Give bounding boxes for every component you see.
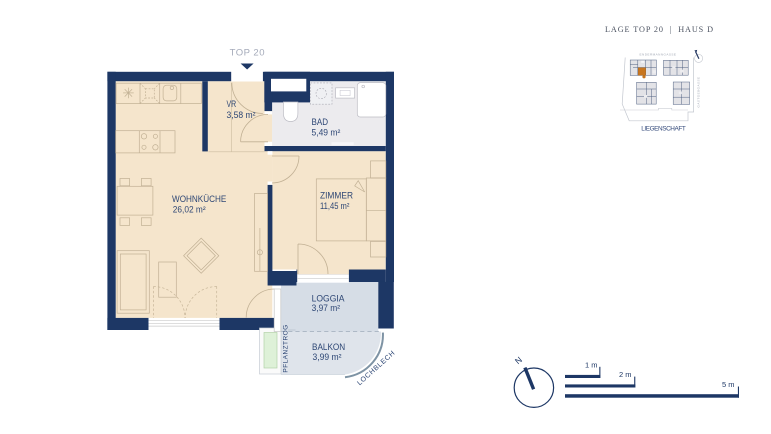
svg-text:2 m: 2 m	[619, 370, 632, 379]
svg-text:3,58 m²: 3,58 m²	[227, 110, 256, 120]
svg-text:3,97 m²: 3,97 m²	[312, 303, 340, 313]
svg-text:3,99 m²: 3,99 m²	[313, 352, 342, 362]
svg-text:LIEGENSCHAFT: LIEGENSCHAFT	[641, 126, 687, 133]
svg-text:ZIMMER: ZIMMER	[320, 191, 353, 201]
svg-text:ENDERMANNGASSE: ENDERMANNGASSE	[640, 52, 677, 56]
svg-text:1 m: 1 m	[585, 360, 598, 369]
svg-text:PFLANZTROG: PFLANZTROG	[283, 324, 290, 372]
svg-text:11,45 m²: 11,45 m²	[320, 201, 349, 211]
svg-text:WOHNKÜCHE: WOHNKÜCHE	[172, 194, 226, 204]
svg-text:VR: VR	[227, 99, 237, 109]
svg-text:GASTGEBGASSE: GASTGEBGASSE	[696, 76, 700, 107]
svg-text:26,02 m²: 26,02 m²	[173, 204, 206, 214]
svg-text:5,49 m²: 5,49 m²	[312, 128, 341, 138]
svg-text:LOGGIA: LOGGIA	[312, 293, 345, 303]
svg-text:LAGE TOP 20 | HAUS D: LAGE TOP 20 | HAUS D	[605, 25, 715, 34]
svg-text:TOP 20: TOP 20	[230, 48, 265, 59]
svg-text:BAD: BAD	[312, 117, 329, 127]
svg-text:BALKON: BALKON	[312, 342, 345, 352]
svg-text:5 m: 5 m	[722, 380, 735, 389]
